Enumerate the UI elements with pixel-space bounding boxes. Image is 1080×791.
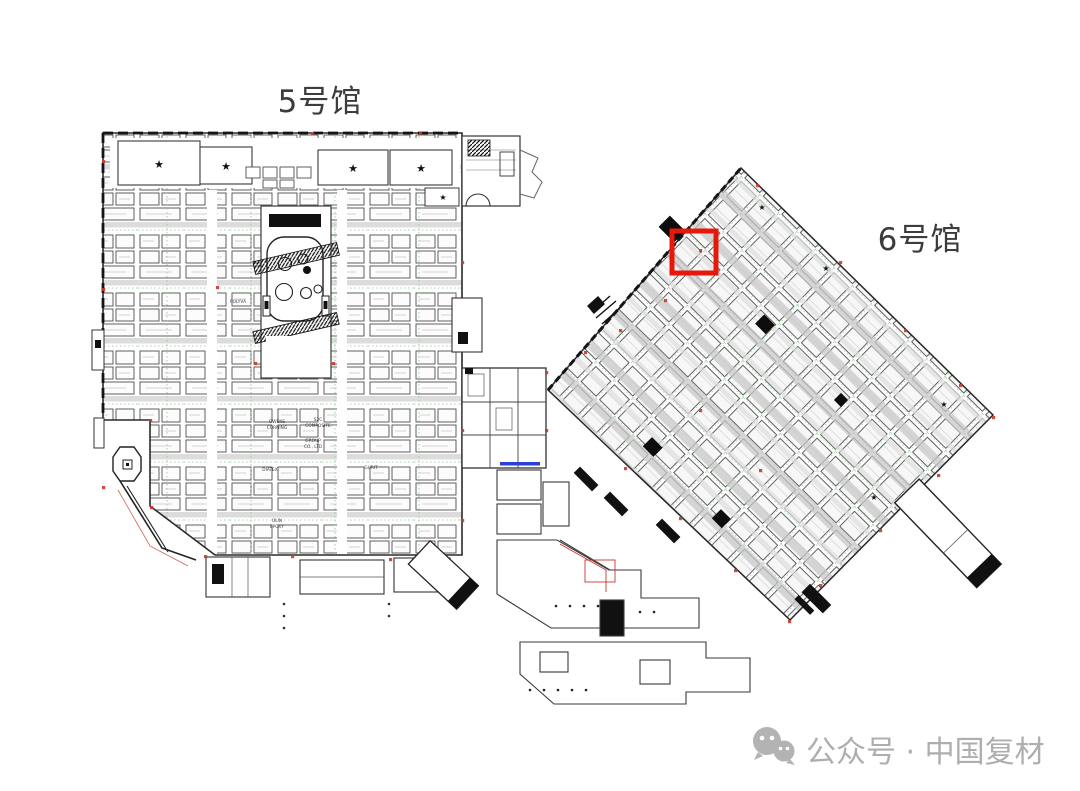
booth-label: GURIT — [364, 465, 378, 471]
floor-plan: ★ ★ ★ ★ ★ — [0, 0, 1080, 791]
hall5-central-core — [253, 206, 340, 378]
svg-text:★: ★ — [416, 162, 426, 175]
svg-text:★: ★ — [154, 158, 164, 171]
wechat-icon — [753, 727, 795, 765]
watermark: 公众号 · 中国复材 — [753, 727, 1045, 770]
svg-text:★: ★ — [822, 264, 829, 273]
hall6-right-annex — [895, 479, 1001, 588]
hall5-facility-block — [462, 136, 542, 206]
svg-text:★: ★ — [221, 160, 231, 173]
booth-label: POLYVA — [230, 299, 246, 305]
hall5-right-edge-room — [452, 298, 482, 352]
booth-label: CO., LTD — [304, 444, 323, 450]
svg-text:★: ★ — [348, 162, 358, 175]
floor-plan-page: ★ ★ ★ ★ ★ — [0, 0, 1080, 791]
hall5-connector-annex — [462, 368, 546, 468]
svg-text:★: ★ — [940, 400, 947, 409]
watermark-text: 公众号 · 中国复材 — [806, 735, 1045, 770]
booth-label: EPOXY — [270, 524, 284, 530]
booth-label: OWENS — [269, 419, 286, 425]
svg-text:★: ★ — [758, 203, 765, 212]
connector-blue-mark — [500, 462, 540, 466]
booth-label: OLIN — [272, 518, 282, 524]
booth-label: S2C — [314, 417, 322, 423]
hall5-title: 5号馆 — [278, 84, 363, 120]
booth-label: GROUP — [305, 438, 321, 444]
booth-label: COMPOSITE — [305, 423, 331, 429]
svg-text:★: ★ — [439, 193, 446, 202]
hall5-plan: ★ ★ ★ ★ ★ — [92, 130, 550, 629]
booth-label: CORNING — [267, 425, 287, 431]
hall6-title: 6号馆 — [878, 222, 963, 258]
booth-label: DIATEX — [262, 467, 278, 473]
svg-text:★: ★ — [870, 493, 877, 502]
